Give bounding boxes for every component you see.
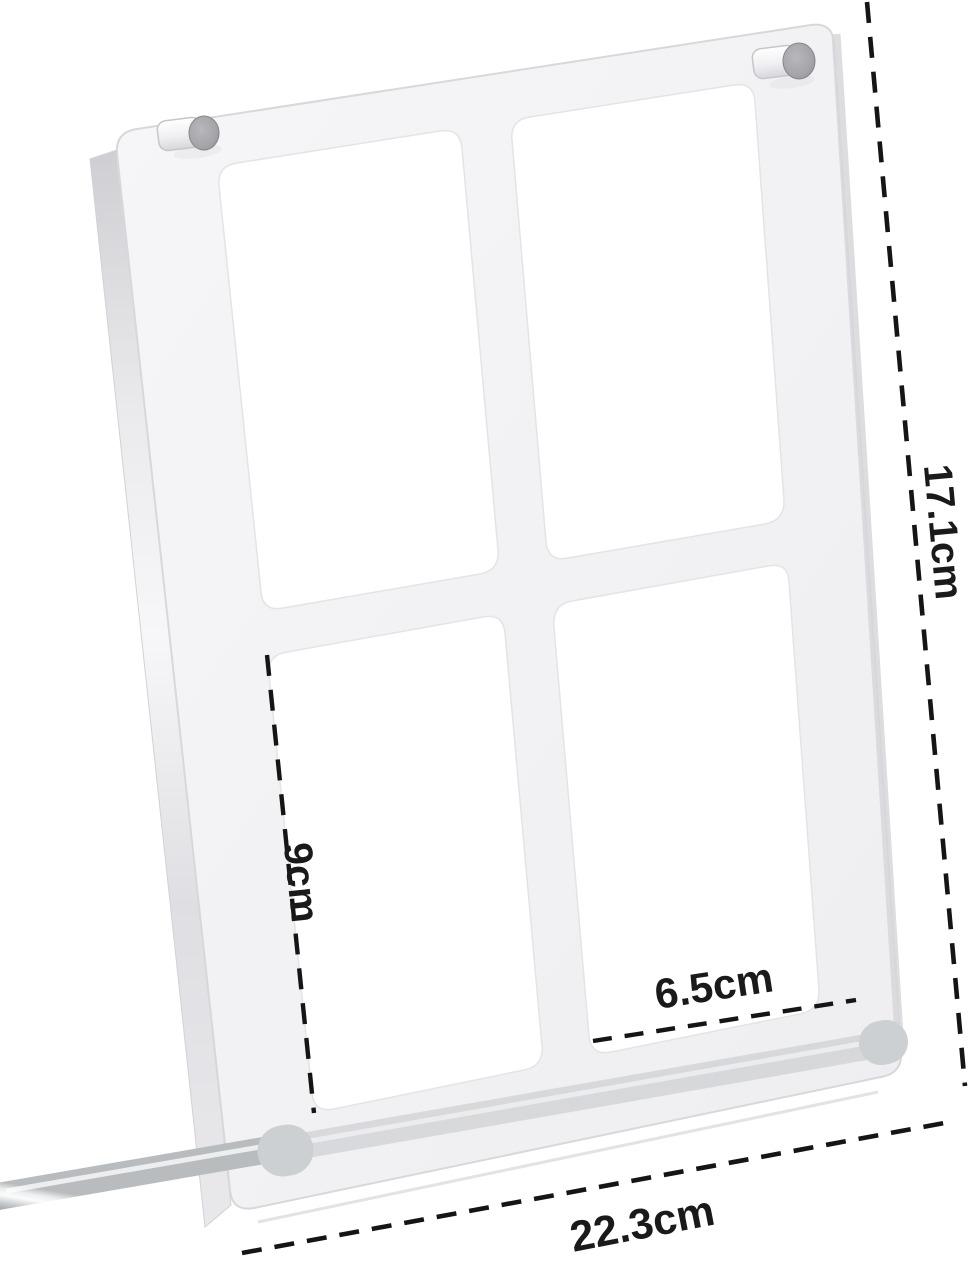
frame-height-dimension-label: 17.1cm xyxy=(915,462,969,601)
card-pocket-window-top-left xyxy=(219,131,498,609)
card-pocket-window-top-right xyxy=(512,85,784,559)
pocket-height-dimension-label: 9cm xyxy=(275,841,327,925)
rod-end-cap-right xyxy=(881,1042,886,1043)
screw-cap-disc xyxy=(189,116,219,150)
screw-cap-disc xyxy=(783,43,815,79)
product-illustration: 17.1cm 9cm 6.5cm xyxy=(0,0,969,1266)
frame-width-dimension-label: 22.3cm xyxy=(566,1187,718,1262)
rod-end-cap-left xyxy=(283,1150,288,1151)
product-photo-acrylic-card-frame: 17.1cm 9cm 6.5cm xyxy=(0,0,969,1266)
